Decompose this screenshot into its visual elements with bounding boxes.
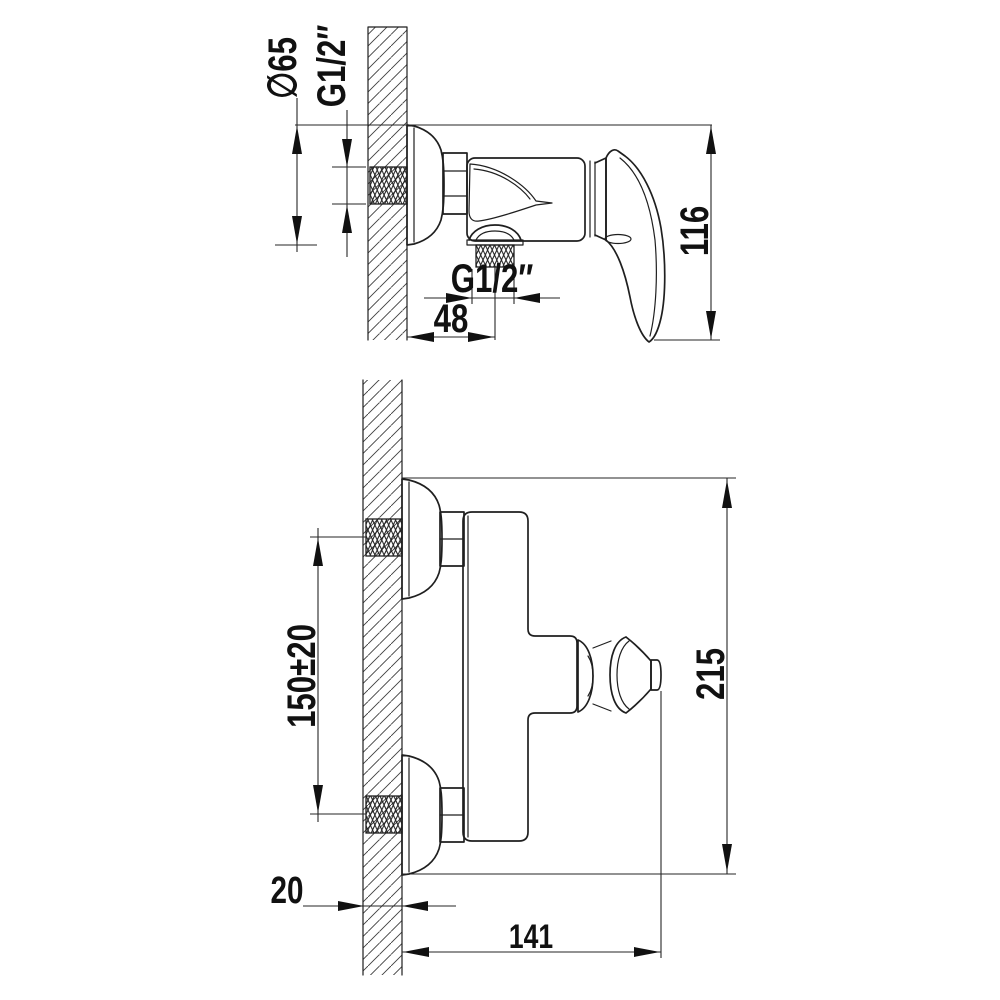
body-spout-curve [469,164,552,221]
front-view-wall [363,380,402,975]
dimension-height-116: 116 [654,125,720,340]
inlet-thread-stub [370,167,407,204]
escutcheon [407,125,444,245]
upper-escutcheon [402,479,464,599]
hex-nut [443,153,467,214]
shower-mixer-drawing: ∅65 G1/2″ 116 G1/2″ [0,0,1000,1000]
lower-escutcheon [402,755,464,875]
dimension-inlet-thread: G1/2″ [309,25,366,257]
height-label: 116 [672,206,717,256]
lower-inlet-thread [366,796,402,833]
overall-height-label: 215 [688,648,733,700]
outlet-offset-label: 48 [434,296,469,341]
wall-thickness-label: 20 [271,870,304,912]
handle-knob-tip [651,660,661,690]
dimension-inlet-spacing: 150±20 [279,528,366,822]
inlet-spacing-label: 150±20 [279,624,324,728]
lever-base-cap [605,235,631,244]
handle-knob [610,637,651,713]
top-view: ∅65 G1/2″ 116 G1/2″ [260,25,720,342]
outlet-thread-label: G1/2″ [451,256,534,301]
technical-drawing-page: ∅65 G1/2″ 116 G1/2″ [0,0,1000,1000]
dimension-outlet-offset-48: 48 [407,296,495,342]
upper-inlet-thread [366,519,402,556]
inlet-thread-label: G1/2″ [309,25,354,108]
wall-hatch [363,380,402,975]
handle-cap [578,640,593,712]
front-view: 150±20 215 20 141 [271,380,736,975]
handle-front [578,637,661,713]
mixer-body [463,512,577,841]
flange-diameter-label: ∅65 [260,37,305,99]
handle-assembly [590,150,665,342]
valve-body [467,158,585,241]
overall-width-label: 141 [509,918,553,956]
